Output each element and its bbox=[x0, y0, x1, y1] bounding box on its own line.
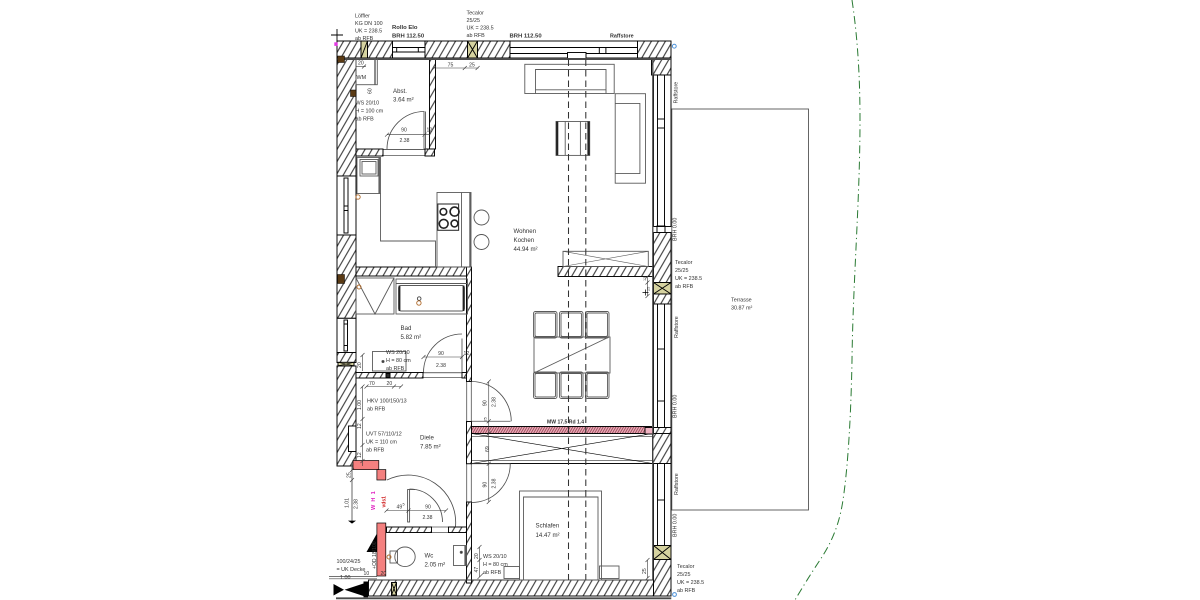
svg-text:20: 20 bbox=[474, 553, 480, 559]
svg-text:5: 5 bbox=[403, 503, 405, 507]
svg-text:20: 20 bbox=[387, 381, 393, 387]
svg-text:44.94 m²: 44.94 m² bbox=[514, 246, 538, 253]
svg-text:25: 25 bbox=[469, 63, 475, 69]
svg-text:10: 10 bbox=[364, 571, 370, 577]
svg-text:1.00: 1.00 bbox=[340, 575, 351, 581]
svg-text:UK = 238.5: UK = 238.5 bbox=[677, 580, 704, 586]
svg-text:3.64 m²: 3.64 m² bbox=[393, 97, 414, 104]
svg-text:WS 20/10: WS 20/10 bbox=[386, 350, 410, 356]
svg-text:12: 12 bbox=[643, 277, 647, 281]
svg-text:Tecalor: Tecalor bbox=[675, 260, 693, 266]
svg-text:ab RFB: ab RFB bbox=[467, 33, 486, 39]
svg-text:WS 20/10: WS 20/10 bbox=[356, 101, 380, 107]
svg-text:2.38: 2.38 bbox=[492, 397, 498, 407]
svg-text:69: 69 bbox=[485, 446, 491, 452]
svg-text:Kochen: Kochen bbox=[514, 237, 535, 244]
svg-text:12: 12 bbox=[357, 452, 363, 458]
svg-text:Abst.: Abst. bbox=[393, 88, 407, 95]
svg-text:H = 100 cm: H = 100 cm bbox=[356, 109, 384, 115]
svg-text:2.38: 2.38 bbox=[423, 515, 433, 521]
svg-text:90: 90 bbox=[425, 505, 431, 511]
svg-text:12: 12 bbox=[464, 351, 470, 357]
svg-text:25: 25 bbox=[642, 568, 648, 574]
svg-text:70: 70 bbox=[369, 381, 375, 387]
svg-text:Terrasse: Terrasse bbox=[731, 298, 752, 304]
svg-text:Löffler: Löffler bbox=[355, 14, 370, 20]
svg-text:ab RFB: ab RFB bbox=[355, 36, 374, 42]
svg-text:1.01: 1.01 bbox=[345, 498, 351, 508]
svg-text:12: 12 bbox=[357, 423, 363, 429]
svg-text:2.05 m²: 2.05 m² bbox=[425, 562, 446, 569]
svg-text:5.82 m²: 5.82 m² bbox=[401, 334, 422, 341]
svg-text:49: 49 bbox=[397, 505, 403, 511]
svg-text:1.00: 1.00 bbox=[357, 400, 363, 410]
svg-text:25: 25 bbox=[347, 472, 353, 478]
svg-text:Rollo Elo: Rollo Elo bbox=[392, 25, 418, 31]
svg-text:ab RFB: ab RFB bbox=[677, 588, 696, 594]
svg-text:Schlafen: Schlafen bbox=[536, 523, 560, 530]
svg-text:30.87 m²: 30.87 m² bbox=[731, 306, 752, 312]
svg-text:25/25: 25/25 bbox=[467, 18, 481, 24]
svg-text:HKV 100/150/13: HKV 100/150/13 bbox=[367, 399, 407, 405]
svg-text:12: 12 bbox=[427, 128, 433, 134]
svg-text:75: 75 bbox=[448, 63, 454, 69]
svg-text:BRH 112.50: BRH 112.50 bbox=[510, 34, 543, 40]
svg-text:UVT 57/110/12: UVT 57/110/12 bbox=[366, 432, 402, 438]
svg-text:Diele: Diele bbox=[420, 435, 434, 442]
svg-text:25/25: 25/25 bbox=[675, 268, 689, 274]
svg-text:Raffstore: Raffstore bbox=[610, 34, 634, 40]
svg-text:BRH 0.00: BRH 0.00 bbox=[673, 395, 679, 418]
svg-text:Wc: Wc bbox=[425, 553, 434, 560]
svg-text:Bad: Bad bbox=[401, 325, 412, 332]
svg-text:Raffstore: Raffstore bbox=[674, 82, 680, 104]
svg-text:47: 47 bbox=[474, 567, 480, 573]
svg-text:BRH 0.00: BRH 0.00 bbox=[673, 514, 679, 537]
svg-text:25: 25 bbox=[484, 417, 488, 421]
svg-text:WS 20/10: WS 20/10 bbox=[483, 554, 507, 560]
svg-text:20: 20 bbox=[357, 362, 363, 368]
svg-text:H = 80 cm: H = 80 cm bbox=[483, 562, 508, 568]
svg-text:Wohnen: Wohnen bbox=[514, 228, 537, 235]
svg-text:90: 90 bbox=[483, 400, 489, 406]
svg-text:BRH 0.00: BRH 0.00 bbox=[673, 218, 679, 241]
svg-text:UK = 238.5: UK = 238.5 bbox=[675, 276, 702, 282]
svg-text:20: 20 bbox=[358, 61, 364, 67]
svg-text:90: 90 bbox=[438, 351, 444, 357]
svg-text:ab RFB: ab RFB bbox=[483, 570, 502, 576]
svg-text:WM: WM bbox=[357, 75, 367, 81]
svg-text:W H 1: W H 1 bbox=[371, 490, 377, 510]
svg-text:60: 60 bbox=[368, 88, 374, 94]
svg-text:Tecalor: Tecalor bbox=[677, 564, 695, 570]
svg-text:UK = 238.5: UK = 238.5 bbox=[467, 26, 494, 32]
svg-text:20: 20 bbox=[381, 571, 387, 577]
svg-text:90: 90 bbox=[483, 482, 489, 488]
svg-text:14.47 m²: 14.47 m² bbox=[536, 532, 560, 539]
svg-text:BRH 112.50: BRH 112.50 bbox=[392, 34, 425, 40]
svg-text:2.38: 2.38 bbox=[400, 138, 410, 144]
svg-text:UK = 110 cm: UK = 110 cm bbox=[366, 440, 397, 446]
svg-text:2.38: 2.38 bbox=[354, 499, 360, 509]
svg-text:UK = 238.5: UK = 238.5 bbox=[355, 29, 382, 35]
svg-text:ab RFB: ab RFB bbox=[386, 366, 405, 372]
svg-text:Raffstore: Raffstore bbox=[674, 473, 680, 495]
svg-text:25: 25 bbox=[647, 287, 651, 291]
svg-text:+OD 18/100: +OD 18/100 bbox=[372, 541, 378, 569]
svg-text:ab RFB: ab RFB bbox=[366, 448, 385, 454]
svg-text:2.38: 2.38 bbox=[492, 478, 498, 488]
svg-text:7.85 m²: 7.85 m² bbox=[420, 444, 441, 451]
svg-text:100/24/25: 100/24/25 bbox=[337, 559, 361, 565]
svg-text:2.38: 2.38 bbox=[436, 363, 446, 369]
svg-text:Tecalor: Tecalor bbox=[467, 11, 485, 17]
svg-text:vds1: vds1 bbox=[382, 496, 388, 508]
svg-text:MW 17,5 Rd 1.4: MW 17,5 Rd 1.4 bbox=[547, 420, 584, 426]
svg-text:KG DN 100: KG DN 100 bbox=[355, 21, 383, 27]
svg-text:90: 90 bbox=[401, 128, 407, 134]
svg-text:ab RFB: ab RFB bbox=[675, 284, 694, 290]
svg-text:ab RFB: ab RFB bbox=[367, 407, 386, 413]
svg-text:= UK Decke: = UK Decke bbox=[337, 567, 366, 573]
svg-text:ab RFB: ab RFB bbox=[356, 117, 375, 123]
svg-text:H = 80 cm: H = 80 cm bbox=[386, 358, 411, 364]
svg-text:Raffstore: Raffstore bbox=[674, 316, 680, 338]
svg-text:25/25: 25/25 bbox=[677, 572, 691, 578]
